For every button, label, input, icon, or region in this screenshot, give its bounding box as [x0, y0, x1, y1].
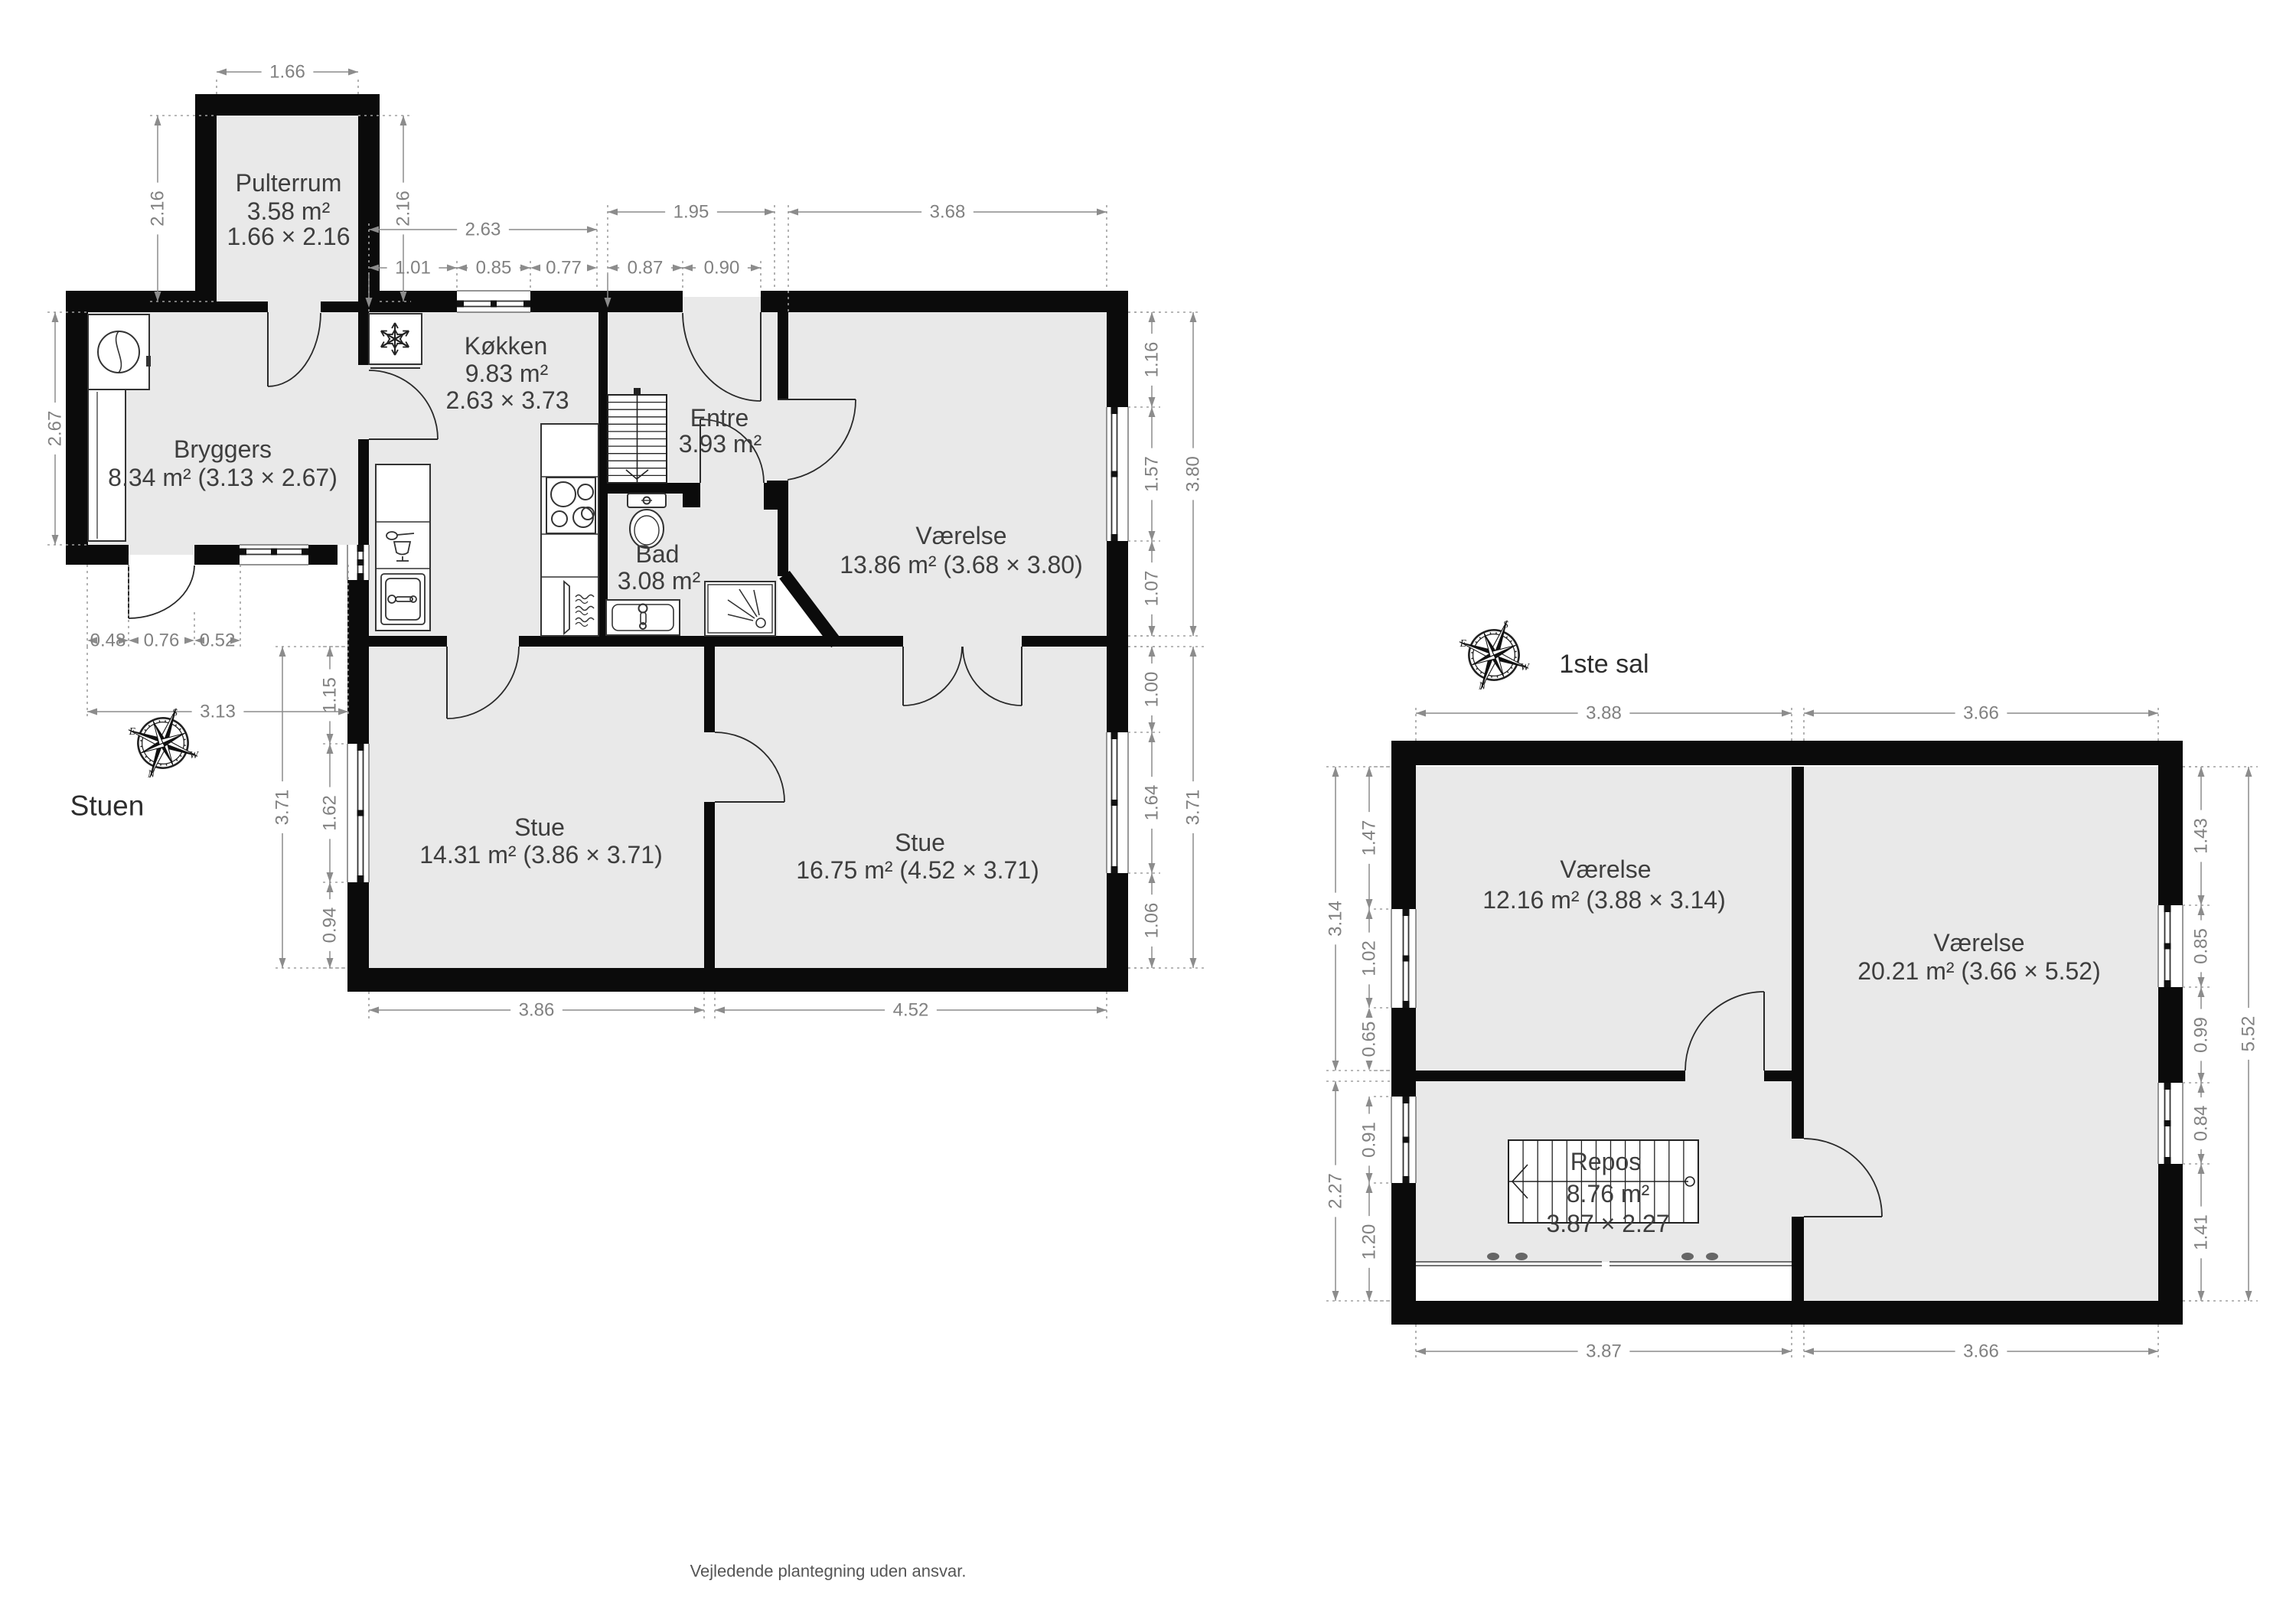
svg-text:0.91: 0.91 — [1359, 1122, 1380, 1158]
svg-text:0.76: 0.76 — [144, 631, 180, 651]
svg-text:E: E — [1459, 637, 1467, 649]
svg-text:3.86: 3.86 — [519, 1000, 555, 1021]
svg-text:Værelse: Værelse — [915, 522, 1006, 549]
svg-text:0.87: 0.87 — [628, 258, 664, 279]
svg-text:12.16 m² (3.88 × 3.14): 12.16 m² (3.88 × 3.14) — [1482, 886, 1726, 914]
svg-text:0.85: 0.85 — [2191, 928, 2212, 964]
svg-text:Værelse: Værelse — [1560, 855, 1651, 883]
svg-text:W: W — [1521, 661, 1531, 673]
svg-text:Stue: Stue — [895, 829, 945, 856]
svg-text:0.94: 0.94 — [320, 908, 341, 943]
svg-text:5.52: 5.52 — [2239, 1016, 2259, 1052]
svg-text:3.58 m²: 3.58 m² — [247, 197, 331, 225]
svg-text:1.15: 1.15 — [320, 677, 341, 713]
svg-text:0.48: 0.48 — [90, 631, 126, 651]
svg-text:0.90: 0.90 — [704, 258, 740, 279]
svg-text:3.14: 3.14 — [1326, 901, 1346, 937]
svg-text:Bad: Bad — [636, 540, 680, 568]
svg-text:Stue: Stue — [514, 813, 565, 841]
svg-text:1.66: 1.66 — [269, 62, 305, 83]
svg-text:2.16: 2.16 — [393, 191, 414, 227]
svg-text:Værelse: Værelse — [1933, 929, 2024, 957]
svg-text:N: N — [1478, 680, 1486, 692]
svg-text:1.20: 1.20 — [1359, 1224, 1380, 1260]
svg-text:Stuen: Stuen — [70, 790, 145, 822]
svg-text:3.08 m²: 3.08 m² — [618, 567, 701, 595]
svg-text:1ste sal: 1ste sal — [1559, 650, 1649, 679]
svg-text:16.75 m² (4.52 × 3.71): 16.75 m² (4.52 × 3.71) — [796, 856, 1039, 884]
svg-text:2.27: 2.27 — [1326, 1173, 1346, 1209]
svg-text:13.86 m² (3.68 × 3.80): 13.86 m² (3.68 × 3.80) — [840, 551, 1083, 578]
svg-text:Repos: Repos — [1570, 1148, 1642, 1175]
svg-text:3.87 × 2.27: 3.87 × 2.27 — [1546, 1210, 1669, 1237]
svg-text:3.80: 3.80 — [1183, 456, 1204, 492]
svg-text:1.57: 1.57 — [1142, 456, 1163, 492]
svg-text:Køkken: Køkken — [465, 332, 547, 360]
svg-text:2.67: 2.67 — [45, 411, 66, 447]
svg-text:2.16: 2.16 — [148, 191, 168, 227]
svg-text:3.68: 3.68 — [930, 202, 966, 223]
svg-text:0.84: 0.84 — [2191, 1106, 2212, 1142]
svg-text:1.00: 1.00 — [1142, 672, 1163, 708]
svg-text:20.21 m² (3.66 × 5.52): 20.21 m² (3.66 × 5.52) — [1857, 957, 2101, 985]
svg-text:3.88: 3.88 — [1586, 703, 1622, 724]
svg-text:3.71: 3.71 — [1183, 790, 1204, 826]
svg-text:3.66: 3.66 — [1963, 703, 1999, 724]
svg-text:14.31 m² (3.86 × 3.71): 14.31 m² (3.86 × 3.71) — [419, 841, 663, 869]
svg-text:8.76 m²: 8.76 m² — [1567, 1180, 1650, 1207]
svg-text:0.99: 0.99 — [2191, 1017, 2212, 1053]
svg-text:1.47: 1.47 — [1359, 820, 1380, 856]
svg-text:Entre: Entre — [690, 404, 748, 432]
svg-text:Pulterrum: Pulterrum — [236, 169, 342, 197]
svg-text:3.93 m²: 3.93 m² — [679, 430, 762, 458]
svg-text:3.66: 3.66 — [1963, 1341, 1999, 1362]
svg-text:2.63 × 3.73: 2.63 × 3.73 — [445, 386, 569, 414]
svg-text:1.06: 1.06 — [1142, 903, 1163, 939]
svg-text:1.16: 1.16 — [1142, 342, 1163, 378]
svg-text:2.63: 2.63 — [465, 220, 501, 240]
svg-text:9.83 m²: 9.83 m² — [465, 360, 549, 387]
svg-text:1.64: 1.64 — [1142, 785, 1163, 821]
svg-text:Vejledende plantegning uden an: Vejledende plantegning uden ansvar. — [690, 1562, 967, 1581]
svg-text:0.52: 0.52 — [200, 631, 236, 651]
svg-text:S: S — [1503, 618, 1508, 630]
svg-text:E: E — [129, 725, 136, 737]
svg-text:1.02: 1.02 — [1359, 940, 1380, 976]
svg-text:1.41: 1.41 — [2191, 1214, 2212, 1250]
svg-text:1.62: 1.62 — [320, 795, 341, 831]
svg-text:3.87: 3.87 — [1586, 1341, 1622, 1362]
svg-text:1.01: 1.01 — [395, 258, 431, 279]
svg-text:1.66 × 2.16: 1.66 × 2.16 — [227, 223, 350, 250]
svg-text:0.77: 0.77 — [546, 258, 582, 279]
svg-text:0.65: 0.65 — [1359, 1022, 1380, 1058]
svg-text:1.43: 1.43 — [2191, 818, 2212, 854]
svg-text:8.34 m² (3.13 × 2.67): 8.34 m² (3.13 × 2.67) — [108, 464, 338, 491]
svg-text:S: S — [172, 706, 178, 718]
svg-text:1.07: 1.07 — [1142, 571, 1163, 607]
svg-text:4.52: 4.52 — [893, 1000, 929, 1021]
svg-text:0.85: 0.85 — [476, 258, 512, 279]
svg-text:1.95: 1.95 — [673, 202, 709, 223]
svg-text:N: N — [147, 768, 155, 780]
svg-text:Bryggers: Bryggers — [174, 435, 272, 463]
svg-text:W: W — [190, 749, 200, 761]
svg-text:3.13: 3.13 — [200, 702, 236, 722]
svg-text:3.71: 3.71 — [272, 790, 293, 826]
